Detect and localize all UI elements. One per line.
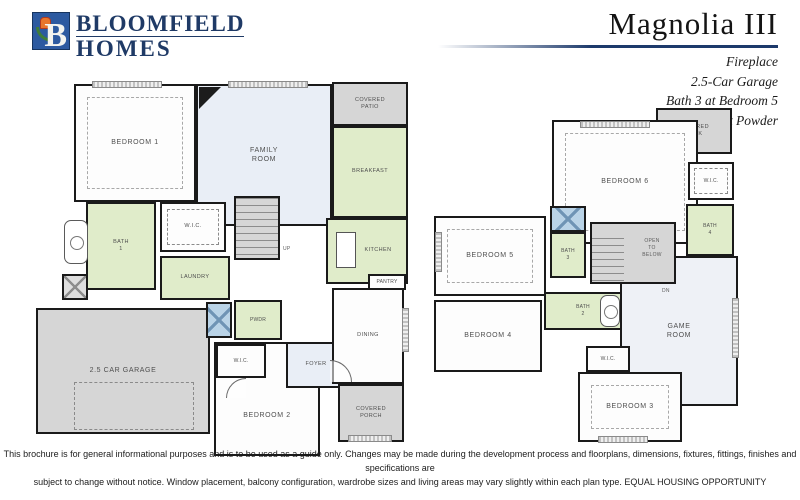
room-bath-4: BATH 4	[686, 204, 734, 256]
bath3-shower-fixture	[550, 206, 586, 232]
room-label: BEDROOM 4	[464, 331, 511, 340]
room-bedroom-1: BEDROOM 1	[74, 84, 196, 202]
room-bedroom-4: BEDROOM 4	[434, 300, 542, 372]
powder-shower-fixture	[206, 302, 232, 338]
room-label: BEDROOM 1	[111, 138, 158, 147]
wic-dashed	[167, 209, 219, 245]
room-label: 2.5 CAR GARAGE	[90, 366, 157, 375]
room-label: LAUNDRY	[181, 274, 210, 281]
plan-name: Magnolia III	[438, 6, 778, 42]
room-bedroom-3: BEDROOM 3	[578, 372, 682, 442]
room-label: BEDROOM 6	[601, 177, 648, 186]
room-label: BEDROOM 3	[606, 402, 653, 411]
room-label: BATH 1	[113, 239, 129, 254]
room-label: COVERED PORCH	[356, 406, 386, 421]
room-label: PANTRY	[376, 279, 397, 286]
window-marker	[435, 232, 442, 272]
window-marker	[92, 81, 162, 88]
bathtub-fixture	[64, 220, 88, 264]
brochure-page: B BLOOMFIELD HOMES Magnolia III Fireplac…	[0, 0, 800, 500]
wic-dashed	[694, 168, 728, 194]
room-label: GAME ROOM	[667, 322, 691, 341]
logo-line2: HOMES	[76, 37, 244, 61]
logo-wordmark: BLOOMFIELD HOMES	[76, 12, 244, 61]
room-wic-bedroom2: W.I.C.	[216, 344, 266, 378]
shower-fixture	[62, 274, 88, 300]
room-label: PWDR	[250, 317, 266, 324]
room-covered-patio: COVERED PATIO	[332, 82, 408, 126]
logo-monogram: B	[44, 19, 67, 53]
disclaimer: This brochure is for general information…	[0, 448, 800, 490]
room-label: BREAKFAST	[352, 168, 388, 175]
window-marker	[348, 435, 392, 442]
room-bath-3: BATH 3	[550, 232, 586, 278]
disclaimer-line2: subject to change without notice. Window…	[0, 476, 800, 490]
window-marker	[228, 81, 308, 88]
room-powder: PWDR	[234, 300, 282, 340]
first-floor-plan: 2.5 CAR GARAGE BEDROOM 1 FAMILY ROOM COV…	[30, 78, 422, 464]
stairs-up-label: UP	[283, 246, 291, 253]
garage-apron-dashed	[74, 382, 194, 430]
logo-line1: BLOOMFIELD	[76, 12, 244, 37]
window-marker	[580, 121, 650, 128]
disclaimer-line1: This brochure is for general information…	[0, 448, 800, 476]
room-label: BATH 2	[576, 304, 590, 318]
bloomfield-homes-logo: B BLOOMFIELD HOMES	[32, 12, 244, 61]
room-label: FAMILY ROOM	[250, 146, 278, 165]
window-marker	[598, 436, 648, 443]
room-label: BEDROOM 5	[466, 251, 513, 260]
title-divider	[438, 45, 778, 48]
room-label: BATH 3	[561, 248, 575, 262]
fireplace-icon	[199, 87, 221, 109]
window-marker	[732, 298, 739, 358]
room-bedroom-5: BEDROOM 5	[434, 216, 546, 296]
room-label: W.I.C.	[234, 358, 249, 365]
room-label: FOYER	[306, 361, 327, 368]
second-floor-plan: COVERED DECK BEDROOM 6 W.I.C. BATH 4 BED…	[430, 106, 766, 458]
room-label: BEDROOM 2	[243, 411, 290, 420]
tulip-b-logo-icon: B	[32, 12, 70, 50]
room-bath-1: BATH 1	[86, 202, 156, 290]
room-label: BATH 4	[703, 223, 717, 237]
staircase	[234, 196, 280, 260]
stairs-dn-label: DN	[662, 288, 670, 295]
feature-item: 2.5-Car Garage	[438, 72, 778, 92]
room-wic-bath1: W.I.C.	[160, 202, 226, 252]
room-label: COVERED PATIO	[355, 97, 385, 112]
room-label: KITCHEN	[365, 247, 392, 254]
window-marker	[402, 308, 409, 352]
room-wic-bedroom6: W.I.C.	[688, 162, 734, 200]
room-label: DINING	[357, 332, 379, 339]
bath2-tub-fixture	[600, 295, 620, 327]
open-to-below-label: OPEN TO BELOW	[630, 238, 674, 259]
room-garage: 2.5 CAR GARAGE	[36, 308, 210, 434]
stair-treads	[592, 238, 624, 282]
feature-item: Fireplace	[438, 52, 778, 72]
staircase-upper: OPEN TO BELOW	[590, 222, 676, 284]
room-covered-porch: COVERED PORCH	[338, 384, 404, 442]
room-wic-bedroom3: W.I.C.	[586, 346, 630, 372]
room-laundry: LAUNDRY	[160, 256, 230, 300]
kitchen-island	[336, 232, 356, 268]
room-breakfast: BREAKFAST	[332, 126, 408, 218]
room-label: W.I.C.	[601, 356, 616, 363]
